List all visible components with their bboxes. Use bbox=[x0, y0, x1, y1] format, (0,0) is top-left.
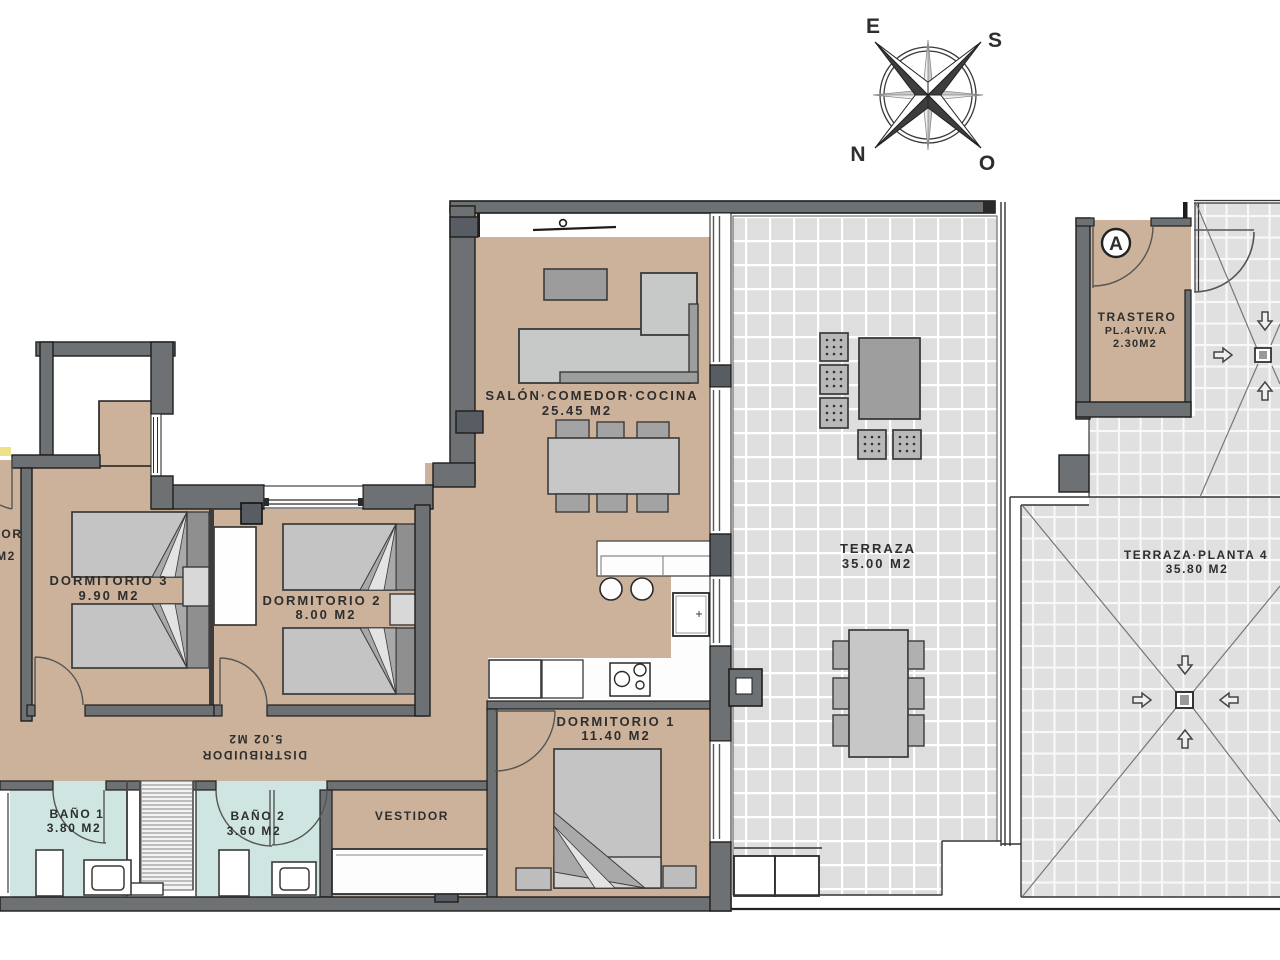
svg-text:11.40 M2: 11.40 M2 bbox=[581, 728, 651, 743]
svg-text:VESTIDOR: VESTIDOR bbox=[375, 809, 449, 823]
svg-text:8.00 M2: 8.00 M2 bbox=[296, 607, 357, 622]
svg-text:25.45 M2: 25.45 M2 bbox=[542, 403, 612, 418]
svg-text:9.90 M2: 9.90 M2 bbox=[79, 588, 140, 603]
svg-text:BAÑO 2: BAÑO 2 bbox=[231, 808, 286, 823]
svg-text:TERRAZA: TERRAZA bbox=[840, 541, 916, 556]
svg-text:3.60 M2: 3.60 M2 bbox=[227, 824, 282, 838]
svg-text:35.80 M2: 35.80 M2 bbox=[1166, 562, 1229, 576]
svg-text:E: E bbox=[866, 15, 880, 38]
svg-text:DORMITORIO 3: DORMITORIO 3 bbox=[49, 573, 168, 588]
svg-text:BAÑO 1: BAÑO 1 bbox=[50, 806, 105, 821]
svg-text:DORMITORIO 2: DORMITORIO 2 bbox=[262, 593, 381, 608]
svg-text:S: S bbox=[988, 29, 1002, 52]
svg-text:A: A bbox=[1109, 234, 1123, 255]
svg-text:TRASTERO: TRASTERO bbox=[1098, 310, 1177, 324]
svg-text:O: O bbox=[979, 152, 995, 175]
svg-text:DORMITORIO 1: DORMITORIO 1 bbox=[556, 714, 675, 729]
svg-text:M2: M2 bbox=[0, 549, 16, 563]
svg-text:SALÓN·COMEDOR·COCINA: SALÓN·COMEDOR·COCINA bbox=[485, 388, 698, 403]
svg-text:5.02 M2: 5.02 M2 bbox=[228, 732, 283, 746]
svg-text:TERRAZA·PLANTA 4: TERRAZA·PLANTA 4 bbox=[1124, 548, 1268, 562]
svg-text:35.00 M2: 35.00 M2 bbox=[842, 556, 912, 571]
svg-text:3.80 M2: 3.80 M2 bbox=[47, 821, 102, 835]
svg-text:2.30M2: 2.30M2 bbox=[1113, 338, 1157, 350]
svg-text:DISTRIBUIDOR: DISTRIBUIDOR bbox=[201, 748, 307, 762]
svg-text:OR: OR bbox=[1, 527, 22, 541]
svg-text:N: N bbox=[850, 143, 865, 166]
svg-text:PL.4-VIV.A: PL.4-VIV.A bbox=[1105, 325, 1167, 337]
